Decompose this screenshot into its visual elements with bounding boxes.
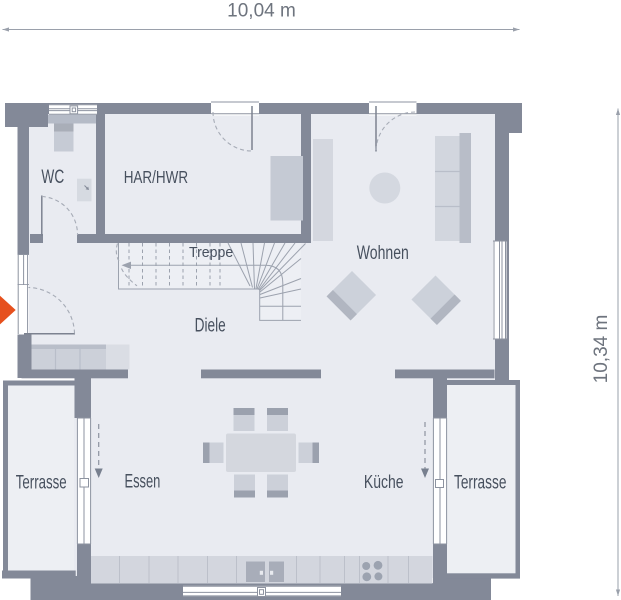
svg-text:Essen: Essen <box>124 471 160 492</box>
svg-text:Terrasse: Terrasse <box>454 471 506 493</box>
svg-text:WC: WC <box>41 166 64 188</box>
svg-text:HAR/HWR: HAR/HWR <box>124 168 188 187</box>
svg-text:10,04 m: 10,04 m <box>227 1 296 22</box>
svg-text:Wohnen: Wohnen <box>357 242 409 264</box>
svg-text:Küche: Küche <box>364 472 404 492</box>
svg-text:Terrasse: Terrasse <box>16 472 67 493</box>
svg-text:Diele: Diele <box>195 314 226 336</box>
svg-text:Treppe: Treppe <box>189 245 233 261</box>
svg-text:10,34 m: 10,34 m <box>591 315 612 384</box>
